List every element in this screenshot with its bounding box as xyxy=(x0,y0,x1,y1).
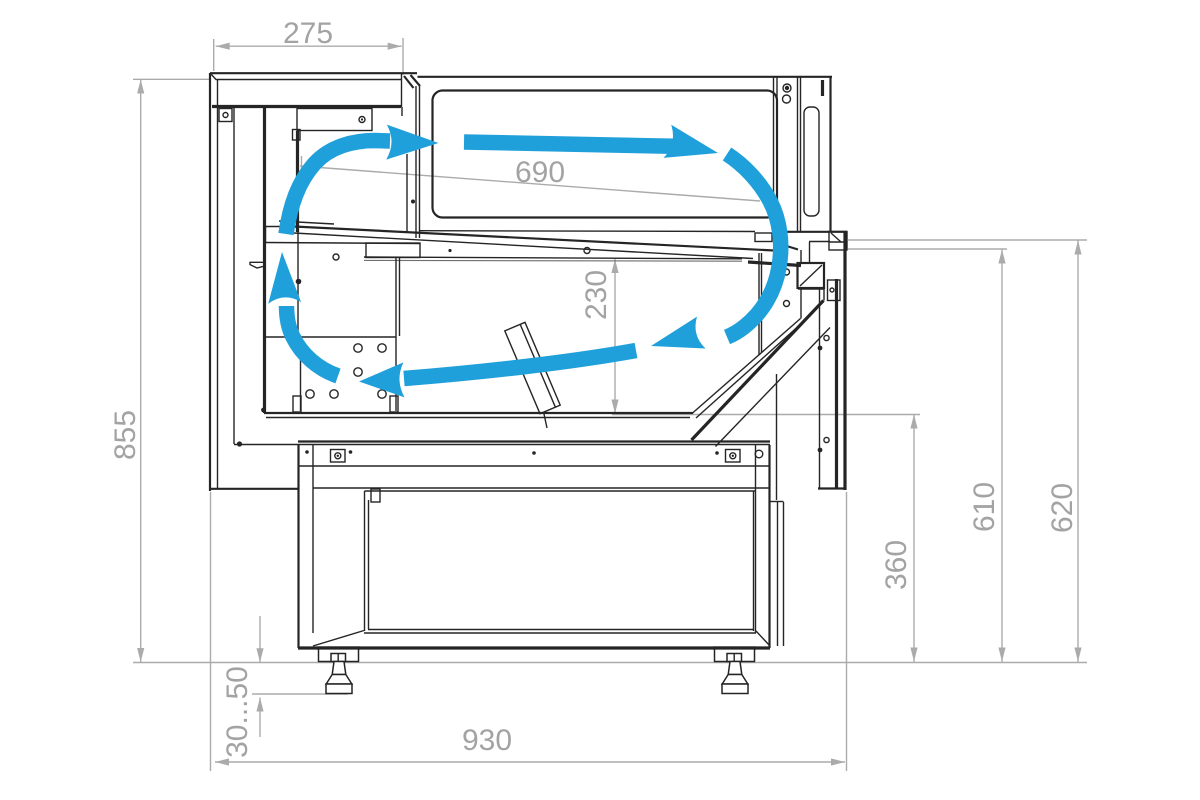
svg-text:855: 855 xyxy=(109,410,142,460)
svg-text:930: 930 xyxy=(462,724,512,757)
svg-text:30...50: 30...50 xyxy=(221,666,254,758)
svg-text:360: 360 xyxy=(880,540,913,590)
svg-text:620: 620 xyxy=(1046,483,1079,533)
svg-text:275: 275 xyxy=(283,17,333,50)
svg-text:690: 690 xyxy=(515,156,565,189)
svg-text:610: 610 xyxy=(968,482,1001,532)
svg-text:230: 230 xyxy=(580,270,613,320)
